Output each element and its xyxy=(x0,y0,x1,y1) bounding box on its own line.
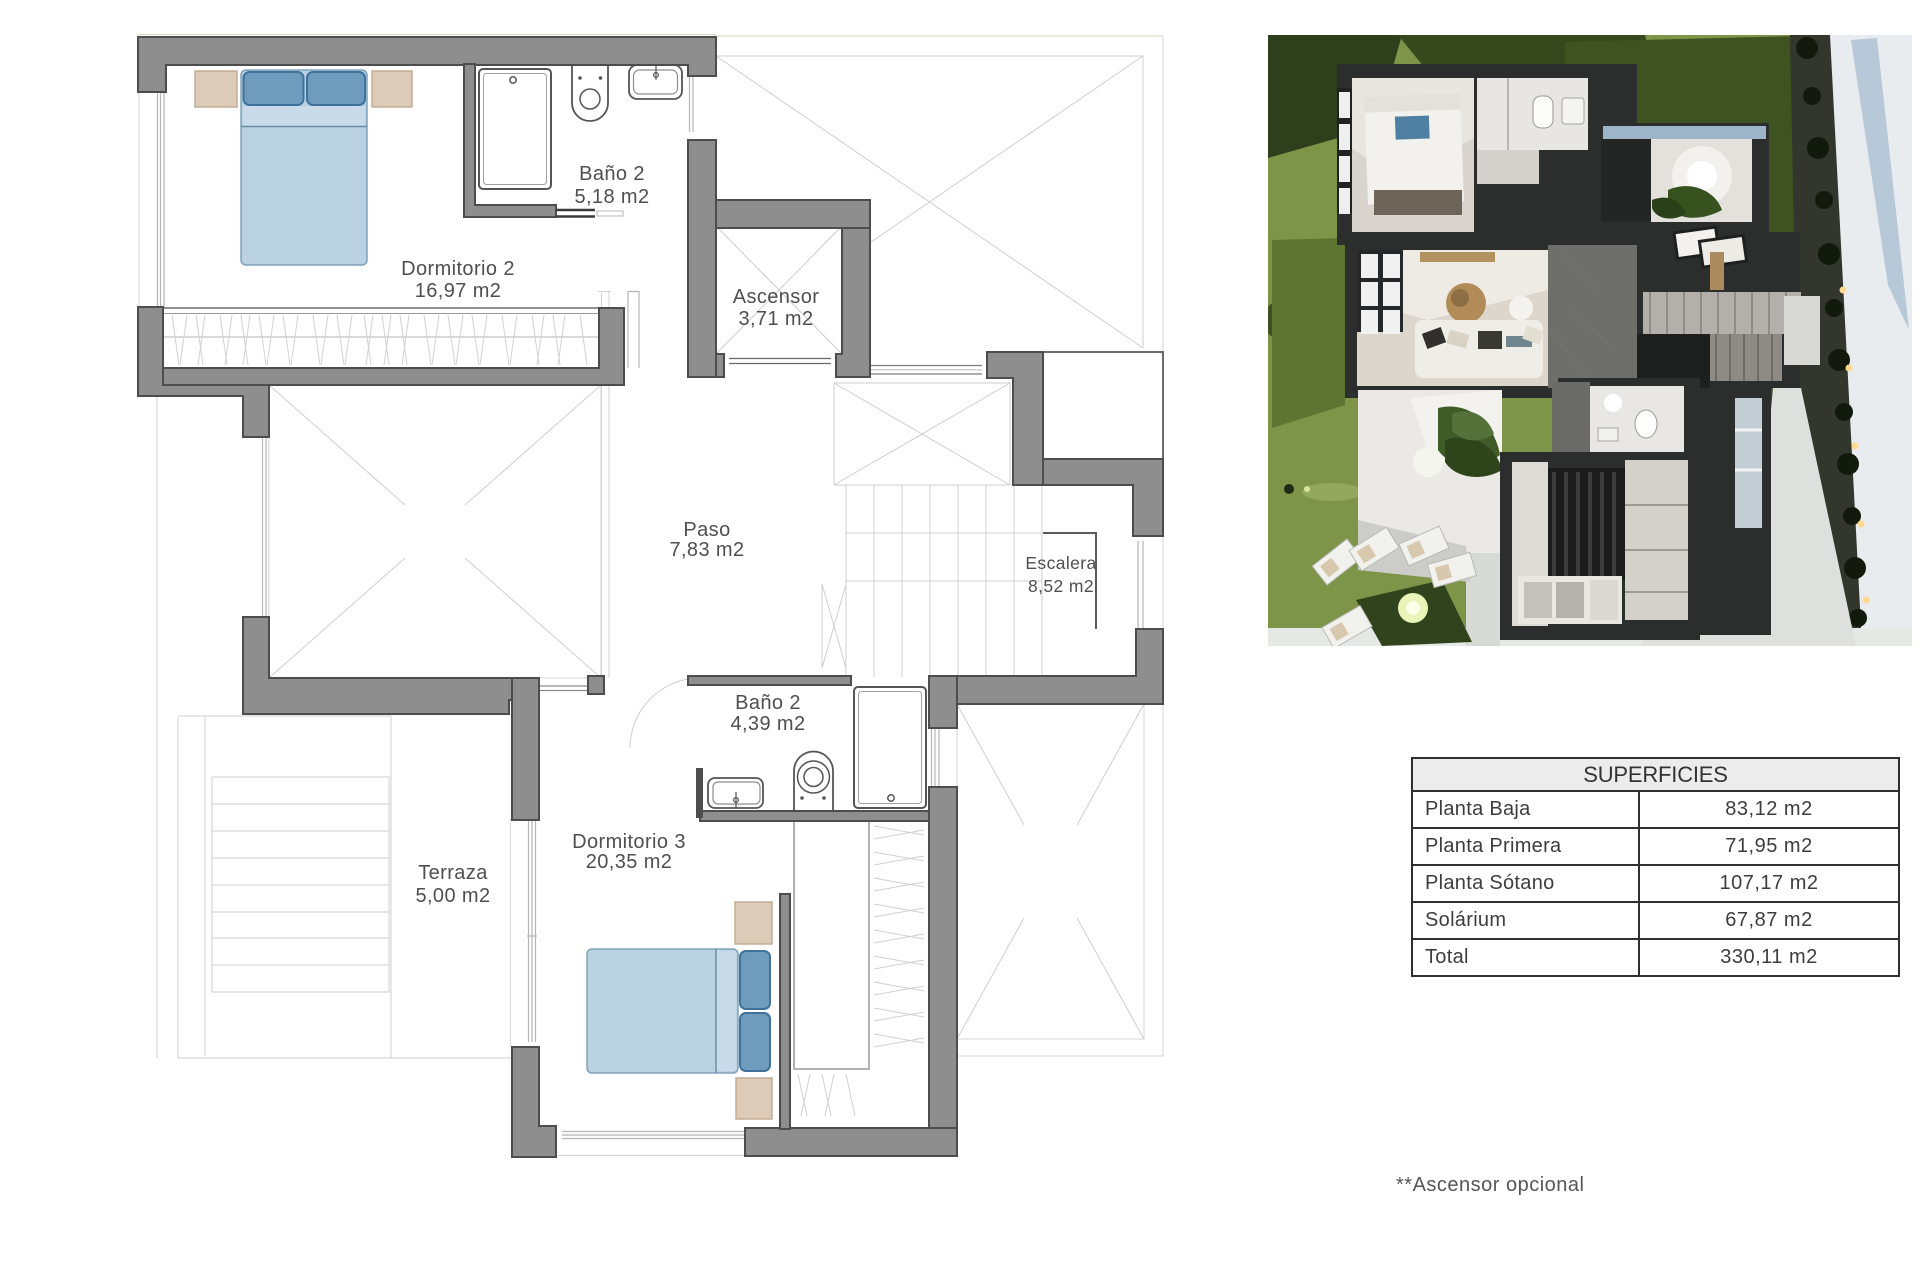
svg-text:5,00 m2: 5,00 m2 xyxy=(415,885,490,907)
svg-text:5,18 m2: 5,18 m2 xyxy=(574,186,649,208)
svg-text:Ascensor: Ascensor xyxy=(733,286,820,308)
svg-text:16,97 m2: 16,97 m2 xyxy=(415,280,502,302)
svg-text:Dormitorio 2: Dormitorio 2 xyxy=(401,258,515,280)
svg-text:Terraza: Terraza xyxy=(418,862,488,884)
svg-text:7,83 m2: 7,83 m2 xyxy=(669,539,744,561)
svg-text:Paso: Paso xyxy=(683,519,730,541)
svg-text:Baño 2: Baño 2 xyxy=(735,692,801,714)
svg-text:3,71 m2: 3,71 m2 xyxy=(738,308,813,330)
svg-text:4,39 m2: 4,39 m2 xyxy=(730,713,805,735)
svg-text:20,35 m2: 20,35 m2 xyxy=(586,851,673,873)
svg-text:8,52 m2: 8,52 m2 xyxy=(1028,576,1094,596)
svg-text:Dormitorio 3: Dormitorio 3 xyxy=(572,831,686,853)
svg-text:Escalera: Escalera xyxy=(1025,553,1096,573)
svg-text:Baño 2: Baño 2 xyxy=(579,163,645,185)
